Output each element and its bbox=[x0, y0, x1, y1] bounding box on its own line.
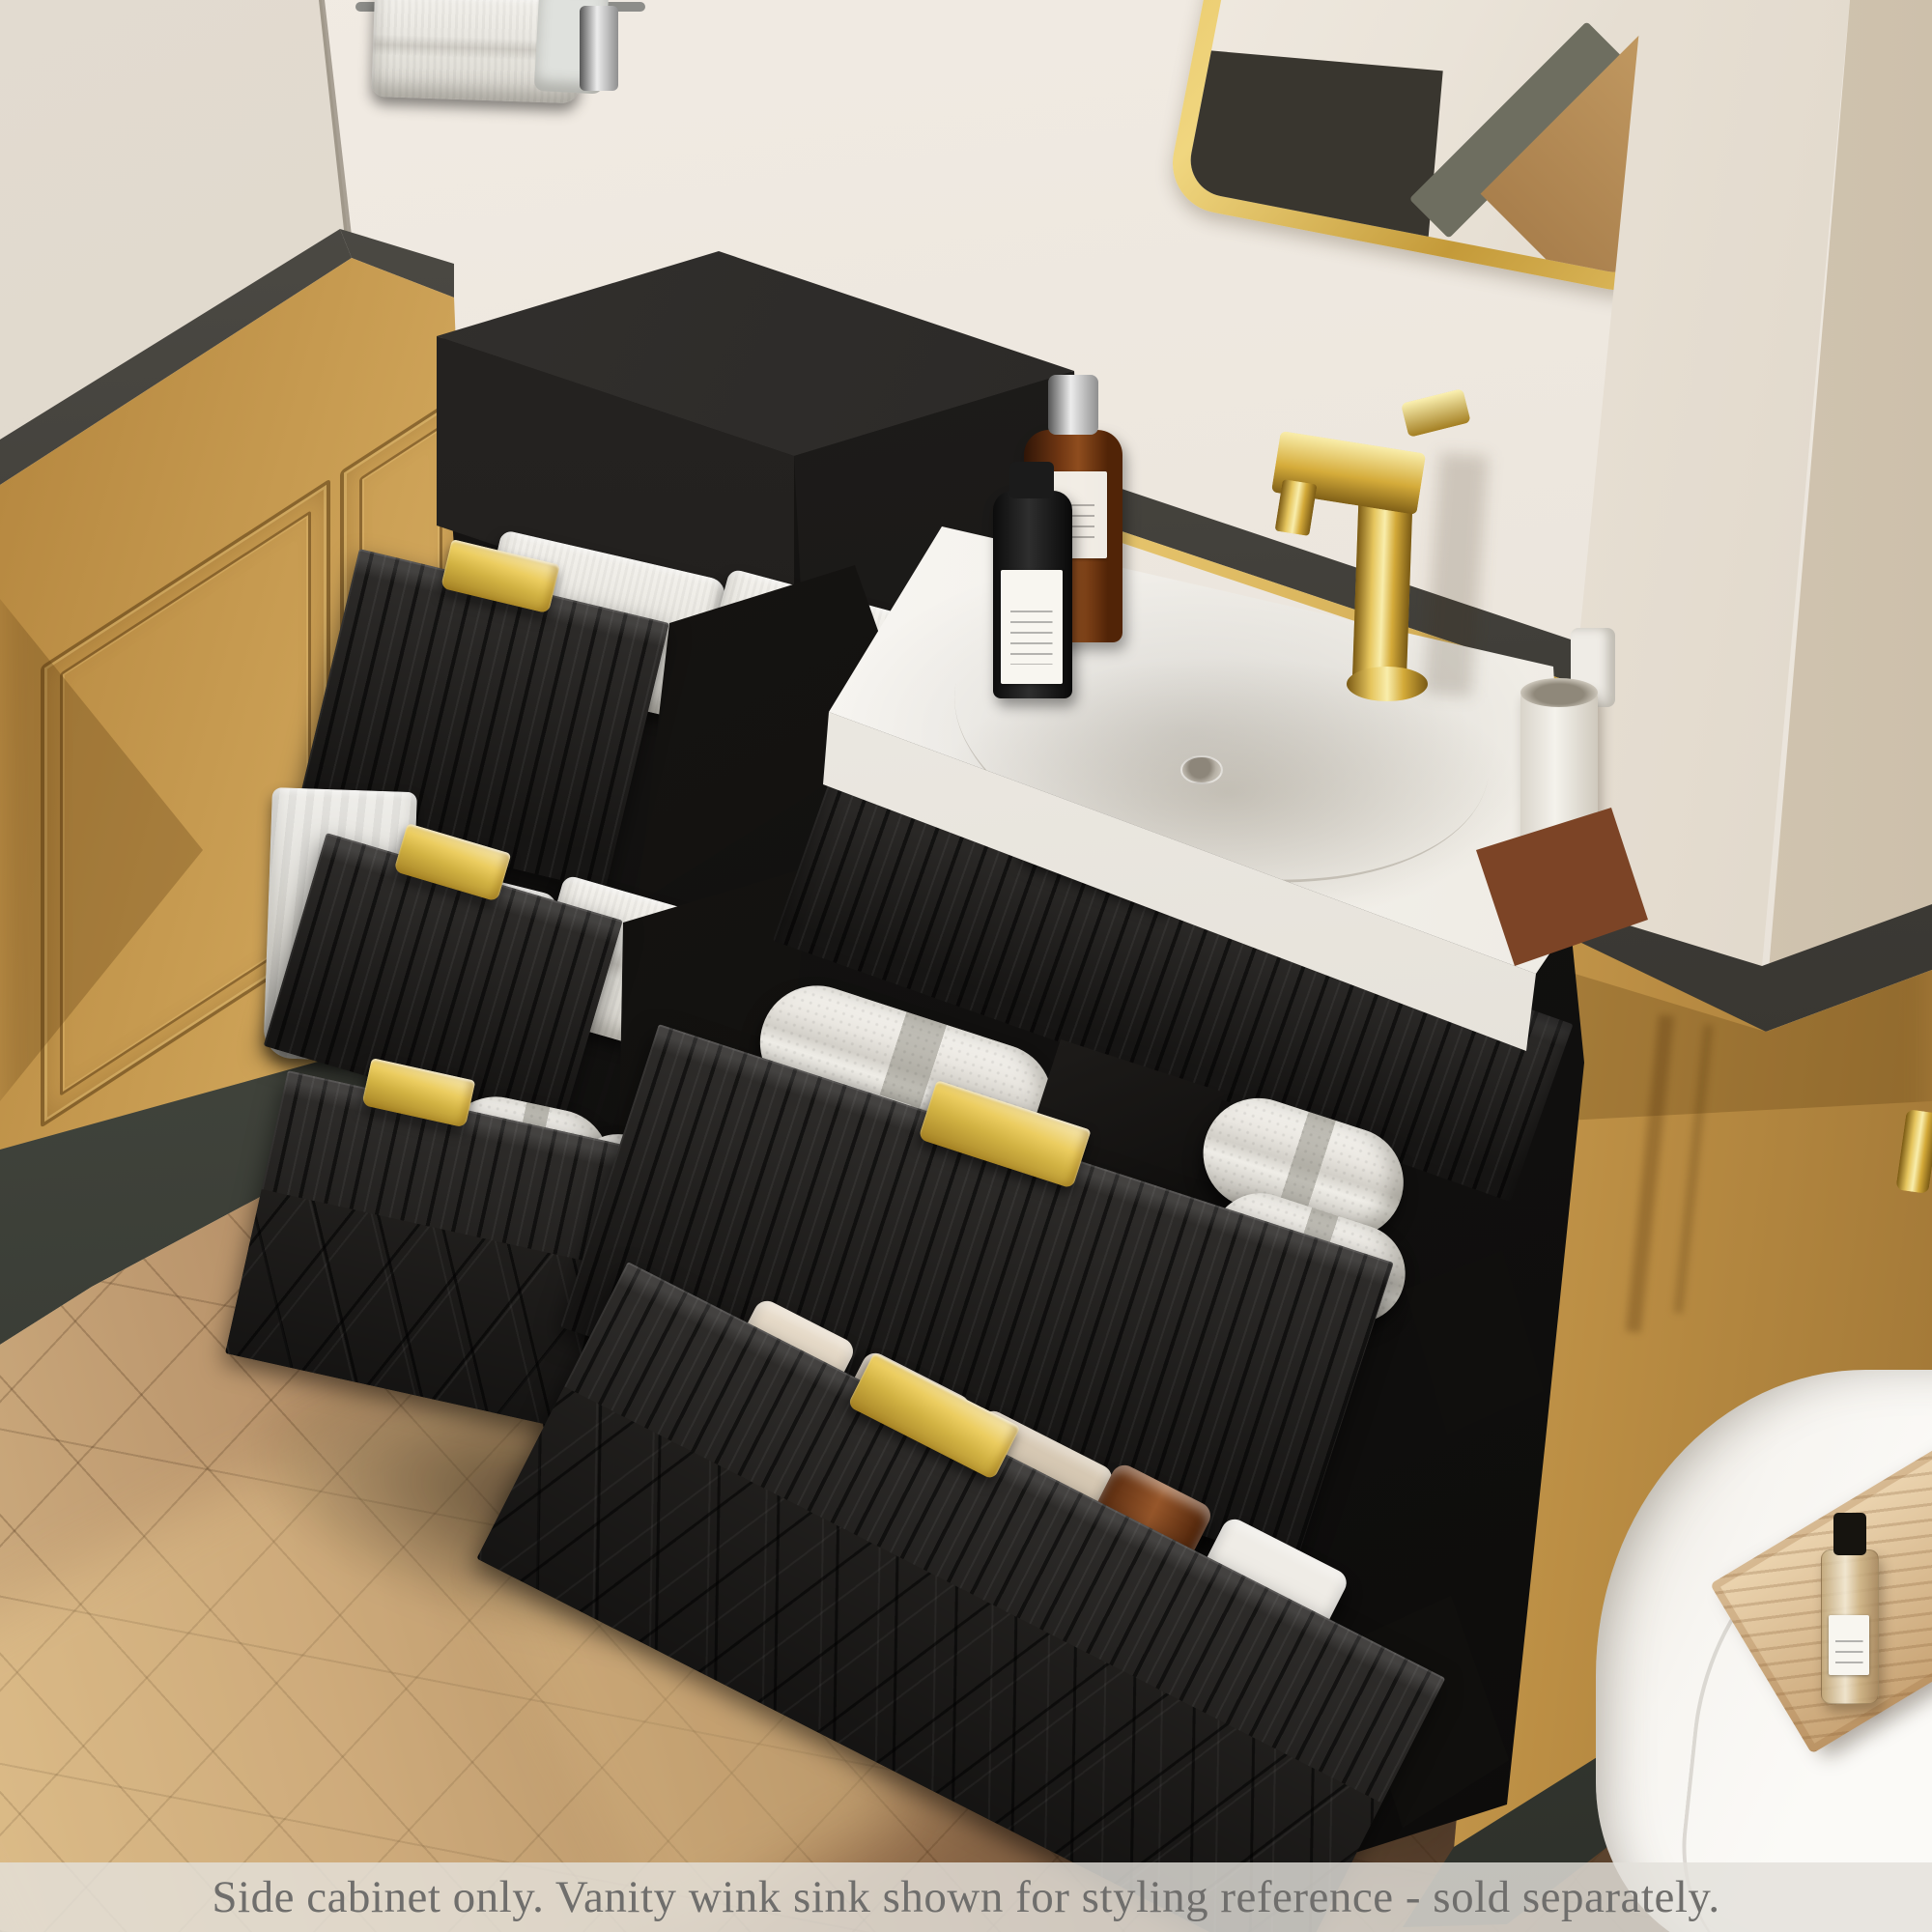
sink-overflow-hole bbox=[1180, 755, 1223, 784]
amber-bottle-chrome-cap bbox=[1048, 375, 1098, 435]
tumbler-cup-rim bbox=[1520, 678, 1598, 707]
bathroom-product-photo: Side cabinet only. Vanity wink sink show… bbox=[0, 0, 1932, 1932]
bath-oil-bottle-cap bbox=[1833, 1513, 1866, 1555]
caption-bar: Side cabinet only. Vanity wink sink show… bbox=[0, 1862, 1932, 1932]
towel-rack-bracket bbox=[580, 6, 618, 91]
bath-oil-bottle-label bbox=[1829, 1615, 1869, 1675]
black-bottle-cap bbox=[1009, 462, 1054, 498]
black-bottle-label bbox=[1001, 570, 1063, 684]
faucet-base bbox=[1347, 667, 1428, 701]
caption-text: Side cabinet only. Vanity wink sink show… bbox=[0, 1862, 1932, 1932]
